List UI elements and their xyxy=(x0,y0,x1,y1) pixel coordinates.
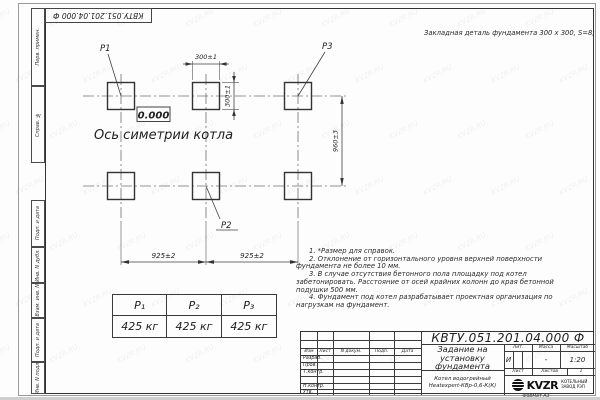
loads-table-value: 425 кг xyxy=(113,316,167,337)
margin-box-sprav-no: Справ. № xyxy=(31,86,45,163)
label-p2: P2 xyxy=(221,221,232,231)
watermark-text: KVZR.RU xyxy=(0,7,11,29)
note-item: 3. В случае отсутствия бетонного пола пл… xyxy=(296,271,588,294)
col-podp: Подп. xyxy=(369,348,394,355)
title-block-line xyxy=(369,332,370,395)
title-block-line xyxy=(394,332,395,395)
col-izm: Изм xyxy=(301,348,317,355)
company-cell: KVZR КОТЕЛЬНЫЙ ЗАВОД РЭП xyxy=(504,375,595,395)
watermark-text: KVZR.RU xyxy=(0,231,11,253)
elevation-mark: 0.000 xyxy=(138,111,170,122)
notes-block: 1. *Размер для справок. 2. Отклонение от… xyxy=(296,248,588,310)
dim-width-300: 300±1 xyxy=(195,53,217,61)
loads-table-header: P₃ xyxy=(222,295,276,316)
title-block-line xyxy=(333,332,334,395)
title-block-line xyxy=(301,376,421,377)
company-name: КОТЕЛЬНЫЙ ЗАВОД РЭП xyxy=(561,380,587,389)
loads-table-header: P₁ xyxy=(113,295,167,316)
loads-table: P₁ P₂ P₃ 425 кг 425 кг 425 кг xyxy=(112,294,277,338)
loads-table-header: P₂ xyxy=(167,295,221,316)
sig-tkontr: Т.контр. xyxy=(301,369,333,376)
dim-925-right: 925±2 xyxy=(240,252,264,260)
title-block: Изм Лист N докум. Подп. Дата Разраб. Про… xyxy=(300,331,594,394)
margin-box-vzam-inv: Взам. инв. N xyxy=(31,283,45,318)
label-p1: P1 xyxy=(100,44,111,54)
title-block-line xyxy=(301,340,421,341)
sig-utv: Утв. xyxy=(301,389,333,395)
lit-label: Лит. xyxy=(504,344,532,351)
mass-value: - xyxy=(532,351,560,368)
watermark-text: KVZR.RU xyxy=(0,119,11,141)
axis-caption: Ось симетрии котла xyxy=(94,128,233,143)
kvzr-logo-text: KVZR xyxy=(527,379,558,392)
col-list: Лист xyxy=(317,348,333,355)
margin-box-podp-data-2: Подп. и дата xyxy=(31,318,45,362)
dim-925-left: 925±2 xyxy=(152,252,176,260)
title-block-line xyxy=(513,351,514,368)
watermark-text: KVZR.RU xyxy=(0,343,11,365)
margin-box-podp-data-1: Подп. и дата xyxy=(31,200,45,247)
label-p3: P3 xyxy=(322,42,333,52)
doc-number: КВТУ.051.201.04.000 Ф xyxy=(421,332,595,344)
sheets-label: Листов xyxy=(532,368,567,375)
col-ndokum: N докум. xyxy=(333,348,369,355)
doc-title: Задание на установку фундамента xyxy=(421,345,504,370)
margin-box-perv-primen: Перв. примен. xyxy=(31,8,45,86)
lit-value: И xyxy=(504,351,513,368)
sheets-value: 1 xyxy=(567,368,595,375)
kvzr-logo-icon xyxy=(512,379,524,391)
sig-prov: Пров. xyxy=(301,362,333,369)
note-item: 2. Отклонение от горизонтального уровня … xyxy=(296,256,588,271)
scale-label: Масштаб xyxy=(560,344,595,351)
loads-table-value: 425 кг xyxy=(167,316,221,337)
loads-table-value: 425 кг xyxy=(222,316,276,337)
margin-box-inv-podl: Инв. N подл. xyxy=(31,362,45,394)
mass-label: Масса xyxy=(532,344,560,351)
margin-box-inv-dubl: Инв. N дубл. xyxy=(31,247,45,283)
dimension-arrows xyxy=(121,62,344,264)
drawing-sheet: KVZR.RUKVZR.RUKVZR.RUKVZR.RUKVZR.RUKVZR.… xyxy=(0,0,600,397)
scale-value: 1:20 xyxy=(560,351,595,368)
sheet-label: Лист xyxy=(504,368,532,375)
product-name: Котел водогрейный Heatexpert-КВр-0,6-К(К… xyxy=(421,370,504,395)
col-data: Дата xyxy=(394,348,421,355)
sig-razrab: Разраб. xyxy=(301,355,333,362)
dim-height-300: 300±1 xyxy=(224,85,232,107)
note-item: 4. Фундамент под котел разрабатывает про… xyxy=(296,294,588,309)
dim-960: 960±3 xyxy=(332,130,340,152)
extension-lines xyxy=(121,61,298,265)
title-block-line xyxy=(522,351,523,368)
